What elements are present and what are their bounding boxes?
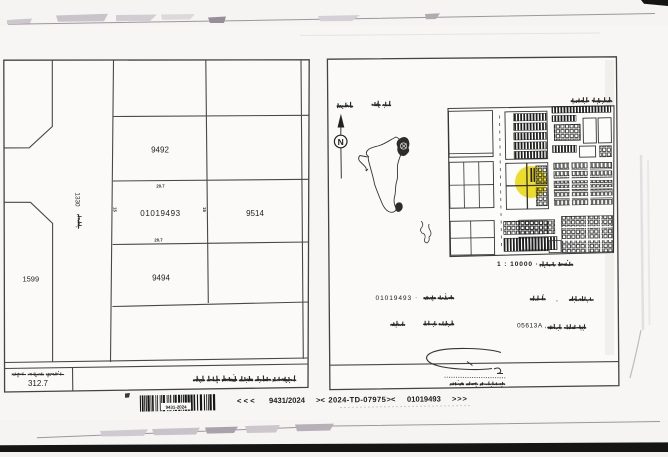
svg-text:N: N	[338, 137, 344, 147]
svg-text:9494: 9494	[152, 274, 170, 283]
svg-text:9514: 9514	[246, 209, 264, 218]
svg-text:15: 15	[202, 207, 207, 212]
svg-text:20.7: 20.7	[154, 238, 163, 243]
svg-text:9431/2024: 9431/2024	[269, 396, 306, 405]
svg-text:1330: 1330	[74, 192, 81, 207]
svg-text:9492: 9492	[151, 146, 169, 155]
svg-text:2024-TD-07975: 2024-TD-07975	[328, 395, 386, 405]
svg-text:1599: 1599	[22, 275, 39, 284]
svg-text:>>>: >>>	[452, 394, 468, 403]
svg-text:05613A ,: 05613A ,	[517, 323, 547, 330]
svg-text:01019493: 01019493	[376, 295, 413, 302]
svg-text:·: ·	[415, 294, 417, 301]
svg-text:<<<: <<<	[237, 396, 257, 405]
svg-text:9431-2024: 9431-2024	[166, 404, 188, 409]
svg-text:20.7: 20.7	[156, 184, 165, 189]
svg-text:><: ><	[386, 395, 396, 404]
svg-text:15: 15	[112, 207, 117, 212]
svg-text:1 : 10000 ·: 1 : 10000 ·	[497, 261, 539, 268]
svg-text:01019493: 01019493	[140, 209, 180, 218]
svg-text:><: ><	[316, 396, 326, 405]
svg-text:,: ,	[556, 296, 558, 303]
svg-text:01019493: 01019493	[407, 394, 441, 403]
svg-text:312.7: 312.7	[28, 379, 49, 388]
